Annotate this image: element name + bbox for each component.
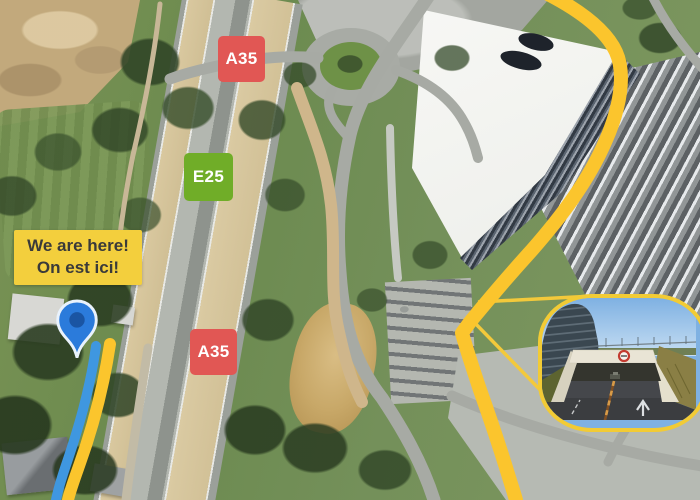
we-are-here-callout: We are here! On est ici! xyxy=(14,230,142,285)
aerial-map: A35 E25 A35 We are here! On est ici! xyxy=(0,0,700,500)
parking-entrance-photo xyxy=(542,298,696,420)
callout-line-fr: On est ici! xyxy=(16,257,140,279)
road-badge-a35-south: A35 xyxy=(190,329,237,375)
road-badge-a35-north: A35 xyxy=(218,36,265,82)
location-pin-icon xyxy=(55,299,99,358)
callout-line-en: We are here! xyxy=(16,235,140,257)
road-badge-e25: E25 xyxy=(184,153,233,201)
entrance-photo-inset xyxy=(538,294,700,432)
